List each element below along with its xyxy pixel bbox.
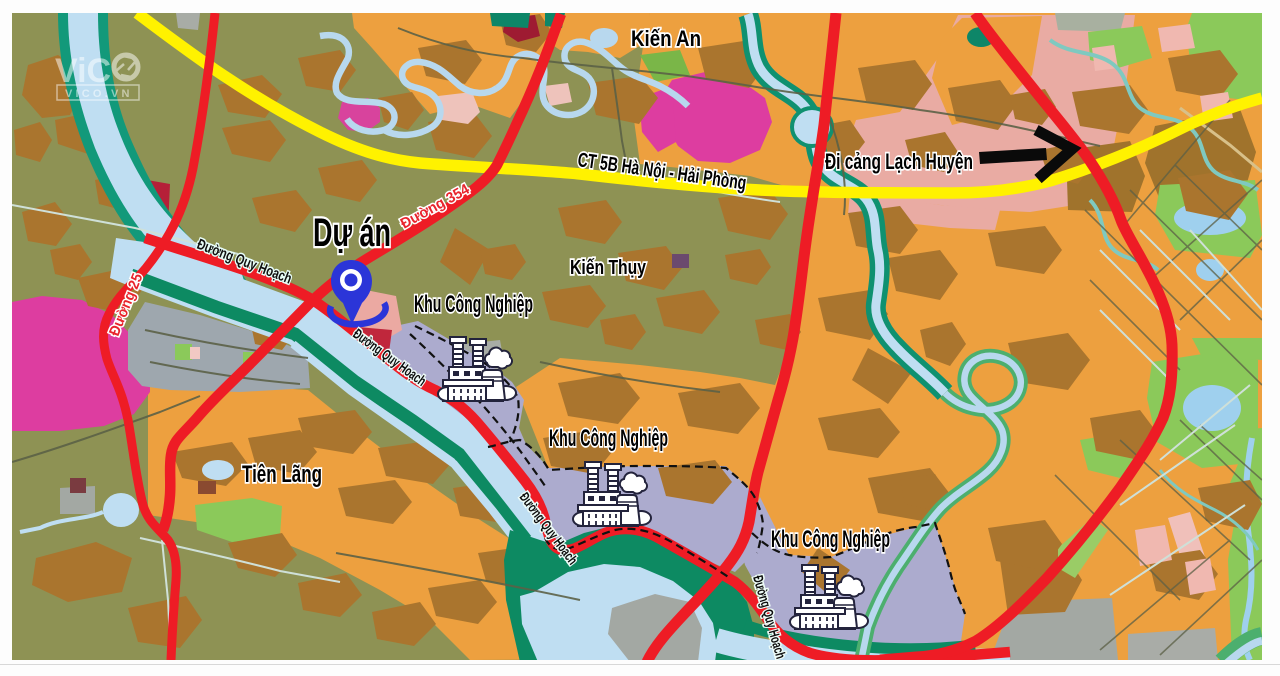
svg-text:Kiến An: Kiến An bbox=[631, 26, 701, 51]
svg-text:Khu Công Nghiệp: Khu Công Nghiệp bbox=[414, 291, 533, 318]
svg-text:Khu Công Nghiệp: Khu Công Nghiệp bbox=[549, 425, 668, 452]
svg-text:Đi cảng Lạch Huyện: Đi cảng Lạch Huyện bbox=[825, 149, 973, 174]
svg-text:VICO.VN: VICO.VN bbox=[65, 88, 133, 100]
svg-text:Khu Công Nghiệp: Khu Công Nghiệp bbox=[771, 526, 890, 553]
svg-text:Tiên Lãng: Tiên Lãng bbox=[242, 461, 322, 488]
svg-text:Kiến Thụy: Kiến Thụy bbox=[570, 257, 647, 279]
svg-text:Dự án: Dự án bbox=[313, 211, 391, 255]
